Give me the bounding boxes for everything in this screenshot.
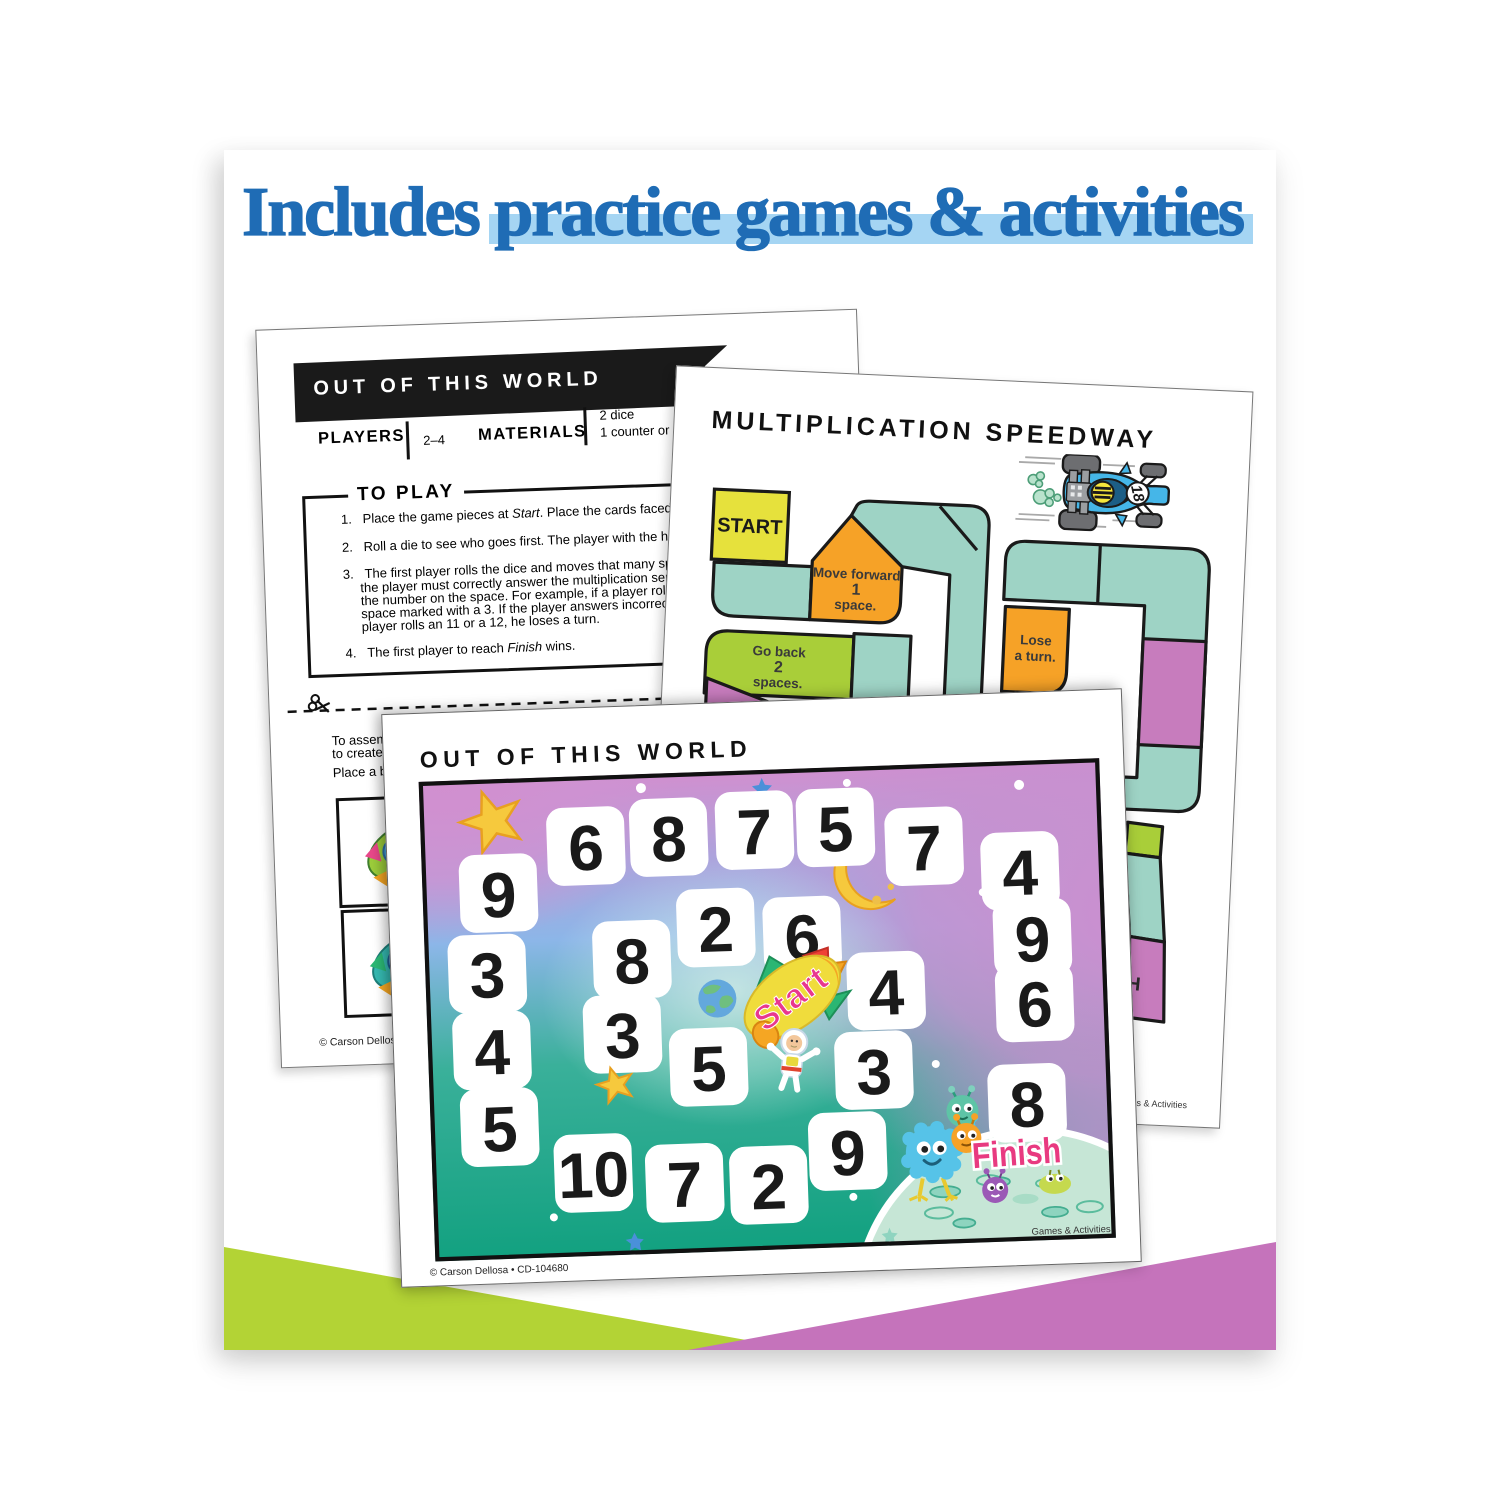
svg-text:5: 5 <box>816 793 854 866</box>
svg-text:9: 9 <box>480 859 518 932</box>
svg-text:3: 3 <box>604 999 642 1072</box>
svg-text:8: 8 <box>650 803 688 876</box>
svg-text:7: 7 <box>666 1148 704 1221</box>
svg-text:4: 4 <box>867 956 905 1029</box>
svg-text:5: 5 <box>690 1032 728 1105</box>
svg-text:2: 2 <box>697 893 735 966</box>
svg-text:6: 6 <box>567 811 605 884</box>
svg-text:4: 4 <box>473 1016 511 1089</box>
svg-text:7: 7 <box>736 796 774 869</box>
svg-text:spaces.: spaces. <box>753 674 803 691</box>
svg-text:5: 5 <box>481 1093 519 1166</box>
svg-text:1: 1 <box>851 581 861 598</box>
svg-text:2: 2 <box>774 659 784 676</box>
svg-text:a turn.: a turn. <box>1014 648 1056 665</box>
svg-text:10: 10 <box>557 1138 631 1212</box>
svg-text:8: 8 <box>613 925 651 998</box>
svg-text:Lose: Lose <box>1020 632 1053 648</box>
svg-text:7: 7 <box>905 812 943 885</box>
svg-text:START: START <box>717 514 783 539</box>
svg-text:Finish: Finish <box>971 1131 1063 1177</box>
svg-text:9: 9 <box>1013 903 1051 976</box>
svg-text:space.: space. <box>834 597 877 614</box>
svg-text:2: 2 <box>750 1150 788 1223</box>
svg-text:3: 3 <box>468 939 506 1012</box>
svg-text:8: 8 <box>1008 1068 1046 1141</box>
svg-text:3: 3 <box>855 1036 893 1109</box>
svg-text:Go back: Go back <box>752 643 806 660</box>
svg-text:6: 6 <box>1016 968 1054 1041</box>
svg-text:4: 4 <box>1001 836 1039 909</box>
svg-text:9: 9 <box>829 1116 867 1189</box>
